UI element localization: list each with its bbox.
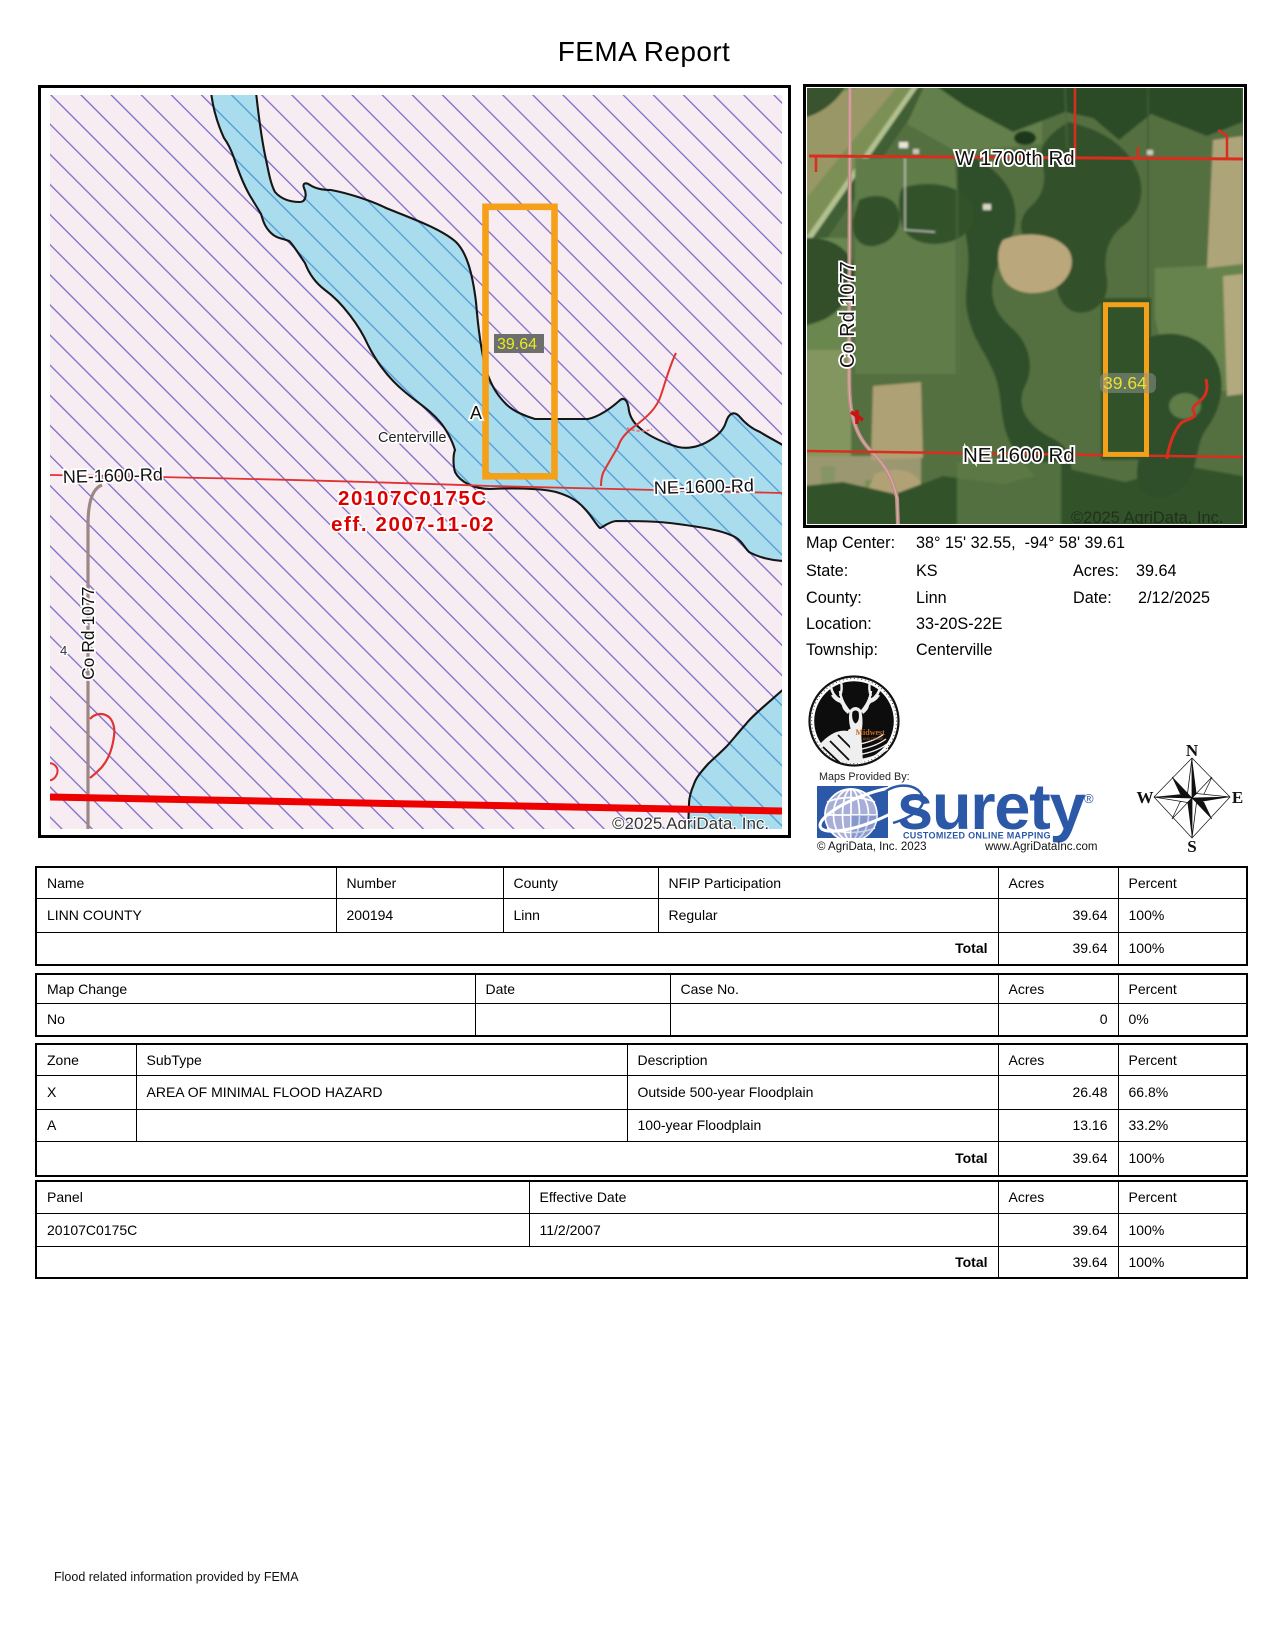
svg-text:Co Rd 1077: Co Rd 1077 bbox=[78, 587, 98, 680]
svg-text:®: ® bbox=[1084, 791, 1094, 806]
svg-text:Midwest: Midwest bbox=[856, 728, 886, 737]
svg-text:LAND GROUP: LAND GROUP bbox=[861, 737, 884, 741]
svg-text:CUSTOMIZED ONLINE MAPPING: CUSTOMIZED ONLINE MAPPING bbox=[903, 831, 1051, 841]
svg-text:E: E bbox=[1232, 788, 1243, 807]
svg-text:A: A bbox=[470, 403, 482, 423]
svg-text:N: N bbox=[1186, 741, 1199, 760]
svg-text:20107C0175C: 20107C0175C bbox=[338, 487, 488, 510]
svg-text:Co Rd 1077: Co Rd 1077 bbox=[837, 261, 859, 368]
svg-text:NE 1600 Rd: NE 1600 Rd bbox=[963, 444, 1075, 467]
svg-text:eff. 2007-11-02: eff. 2007-11-02 bbox=[331, 513, 495, 536]
svg-text:Centerville: Centerville bbox=[378, 430, 447, 446]
svg-text:©2025 AgriData, Inc.: ©2025 AgriData, Inc. bbox=[1071, 509, 1224, 524]
svg-text:NE-1600-Rd: NE-1600-Rd bbox=[63, 464, 164, 487]
svg-text:W 1700th Rd: W 1700th Rd bbox=[955, 147, 1075, 170]
svg-text:©2025 AgriData, Inc.: ©2025 AgriData, Inc. bbox=[612, 814, 769, 829]
svg-text:39.64: 39.64 bbox=[1103, 373, 1147, 393]
svg-text:4: 4 bbox=[60, 643, 67, 658]
svg-text:NE-1600-Rd: NE-1600-Rd bbox=[654, 475, 755, 498]
svg-text:W: W bbox=[1137, 788, 1154, 807]
svg-text:39.64: 39.64 bbox=[497, 336, 537, 353]
svg-text:S: S bbox=[1187, 837, 1196, 856]
